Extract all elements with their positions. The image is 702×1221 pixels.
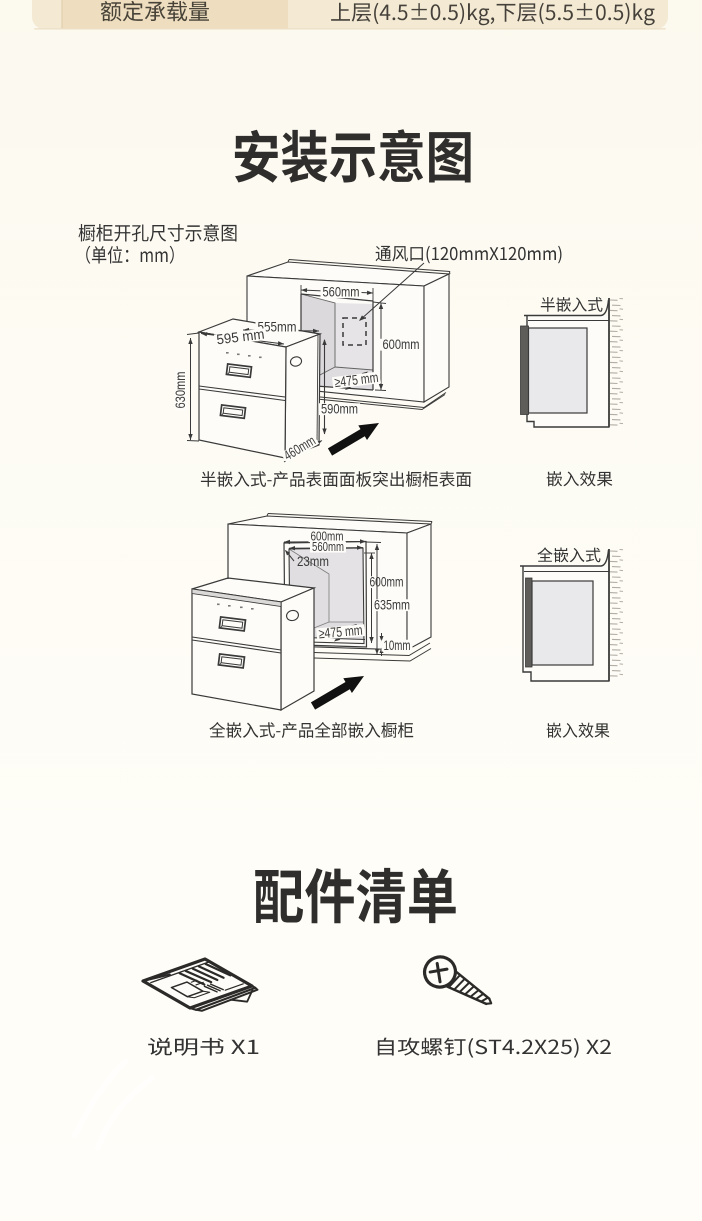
- svg-text:560mm: 560mm: [312, 540, 344, 554]
- svg-text:560mm: 560mm: [323, 284, 360, 300]
- svg-text:590mm: 590mm: [321, 401, 358, 417]
- svg-text:23mm: 23mm: [297, 553, 329, 569]
- svg-text:630mm: 630mm: [172, 372, 188, 409]
- svg-text:10mm: 10mm: [384, 637, 411, 653]
- svg-text:635mm: 635mm: [374, 597, 410, 613]
- svg-text:600mm: 600mm: [383, 336, 420, 352]
- svg-text:600mm: 600mm: [370, 574, 404, 590]
